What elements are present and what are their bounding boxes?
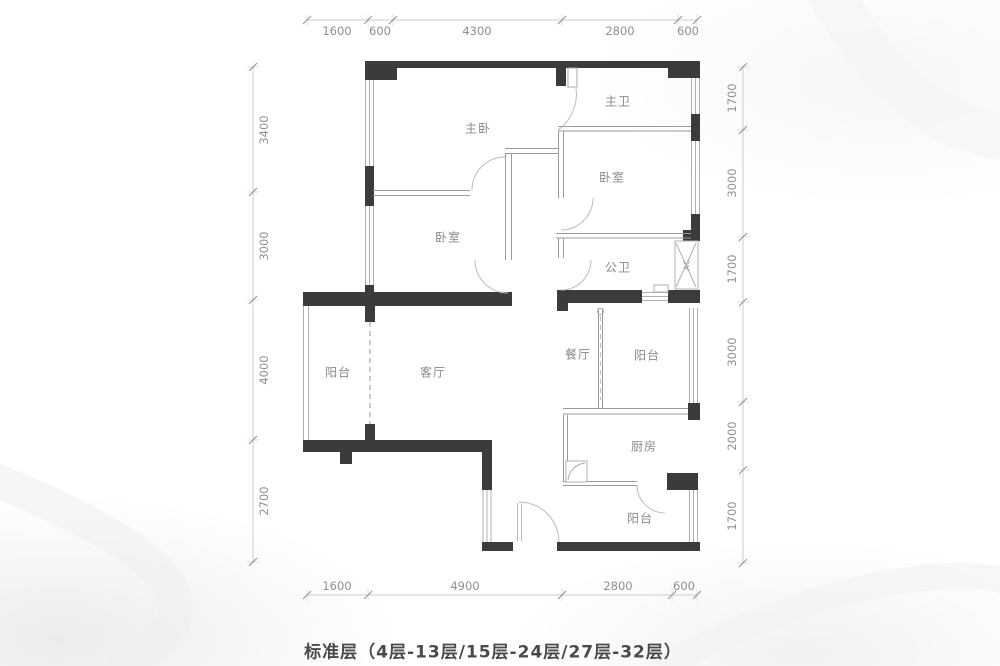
room-label-bedroom-right: 卧室 <box>599 169 625 186</box>
dim-top-600b: 600 <box>677 24 699 38</box>
dim-left-3400: 3400 <box>257 115 271 144</box>
dim-top-2800: 2800 <box>605 24 634 38</box>
flue-shaft-symbol <box>566 461 587 482</box>
room-label-balcony-bottom: 阳台 <box>627 510 653 527</box>
walls-layer <box>303 61 700 551</box>
room-label-dining-room: 餐厅 <box>565 346 591 363</box>
room-label-master-bath: 主卫 <box>605 93 631 110</box>
dim-bottom-1600: 1600 <box>322 579 351 593</box>
dim-top-4300: 4300 <box>462 24 491 38</box>
floor-plan-page: 主卧 主卫 卧室 卧室 公卫 阳台 客厅 餐厅 阳台 厨房 阳台 AC 1600… <box>0 0 1000 666</box>
room-label-living-room: 客厅 <box>420 364 446 381</box>
dimension-lines-layer <box>247 14 749 601</box>
dim-right-1700b: 1700 <box>725 254 739 283</box>
room-label-master-bedroom: 主卧 <box>465 120 491 137</box>
room-label-common-bath: 公卫 <box>605 259 631 276</box>
background-decor <box>0 0 1000 666</box>
dim-right-1700c: 1700 <box>725 501 739 530</box>
room-label-bedroom-left: 卧室 <box>435 229 461 246</box>
dim-bottom-600: 600 <box>673 579 695 593</box>
dim-right-2000: 2000 <box>725 421 739 450</box>
dim-top-1600: 1600 <box>322 24 351 38</box>
dim-right-1700a: 1700 <box>725 83 739 112</box>
floor-plan-drawing <box>0 0 1000 666</box>
dim-left-4000: 4000 <box>257 355 271 384</box>
dim-right-3000a: 3000 <box>725 168 739 197</box>
room-label-kitchen: 厨房 <box>631 438 657 455</box>
dim-left-3000: 3000 <box>257 231 271 260</box>
room-label-balcony-mid: 阳台 <box>634 347 660 364</box>
room-label-balcony-left: 阳台 <box>325 364 351 381</box>
dim-top-600a: 600 <box>369 24 391 38</box>
windows-layer <box>304 78 700 542</box>
dim-bottom-2800: 2800 <box>603 579 632 593</box>
dim-right-3000b: 3000 <box>725 337 739 366</box>
room-label-ac-unit: AC <box>683 260 692 271</box>
floor-caption: 标准层（4层-13层/15层-24层/27层-32层） <box>304 638 682 663</box>
dim-bottom-4900: 4900 <box>450 579 479 593</box>
dim-left-2700: 2700 <box>257 486 271 515</box>
